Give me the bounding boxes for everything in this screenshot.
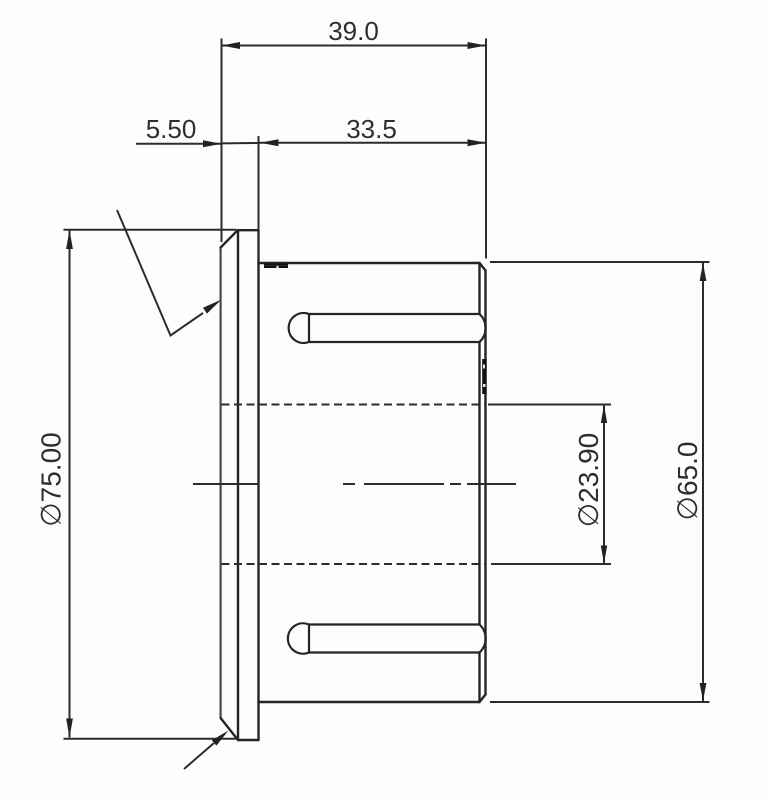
svg-text:5.50: 5.50 (146, 114, 197, 144)
svg-text:∅23.90: ∅23.90 (573, 433, 604, 527)
svg-text:∅65.0: ∅65.0 (672, 442, 703, 521)
svg-text:33.5: 33.5 (346, 114, 397, 144)
svg-text:∅75.00: ∅75.00 (36, 432, 67, 526)
svg-text:39.0: 39.0 (328, 16, 379, 46)
